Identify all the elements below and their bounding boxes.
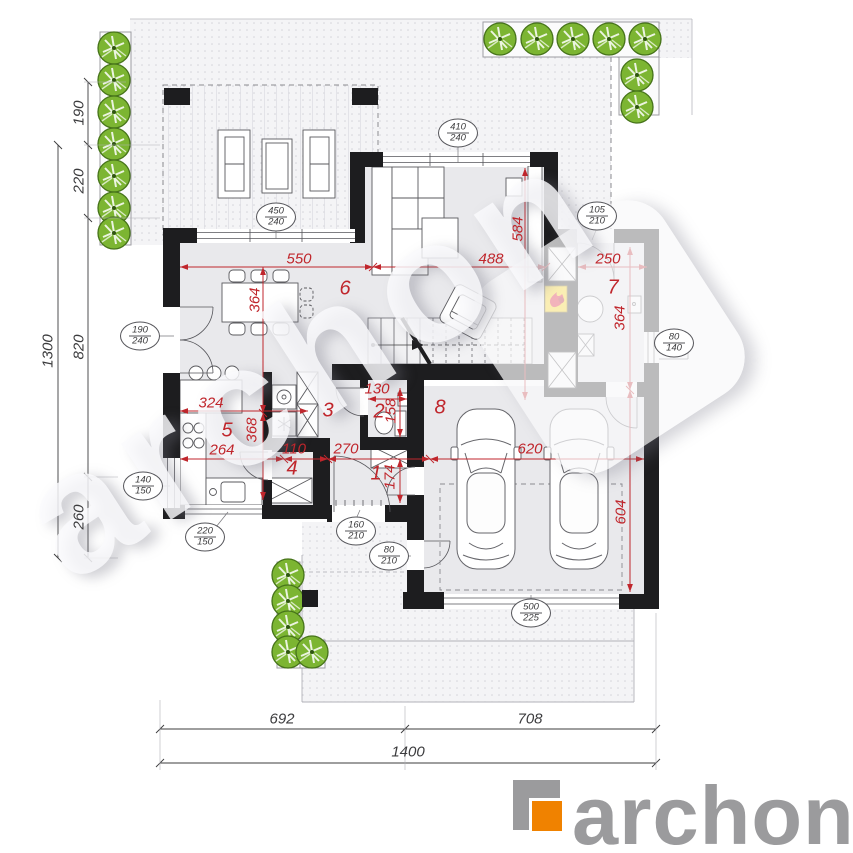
terrace-sofa-icon: [303, 130, 335, 198]
logo-text: archon: [572, 768, 853, 853]
side-table-icon: [506, 178, 522, 196]
floorplan-page: archon 550 488 250 364 368 584 364 604 3…: [0, 0, 853, 853]
floor-plan-drawing: [0, 0, 853, 853]
sink-icon: [221, 482, 245, 502]
fireplace-icon: [545, 286, 567, 312]
terrace-sofa-icon: [218, 130, 250, 198]
tv-board-icon: [528, 166, 542, 282]
terrace-table-icon: [262, 139, 292, 193]
faucet-icon: [210, 489, 217, 496]
logo-orange-square: [529, 798, 565, 834]
boiler-icon: [577, 296, 603, 322]
coffee-table-icon: [422, 218, 458, 258]
cooktop-icon: [183, 423, 193, 433]
